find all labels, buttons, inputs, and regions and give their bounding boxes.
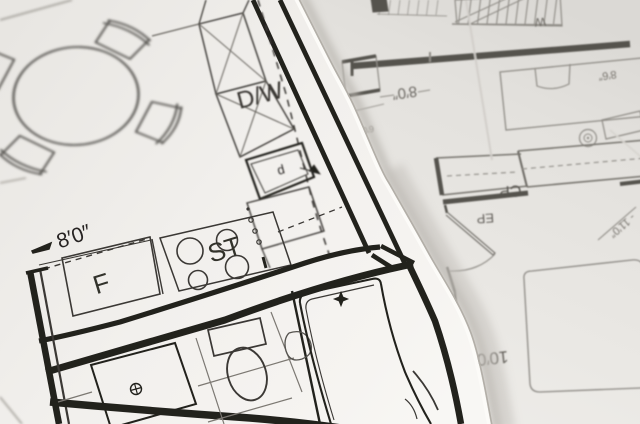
svg-text:W: W <box>533 15 546 30</box>
svg-text:8′0″: 8′0″ <box>390 82 418 102</box>
svg-text:EP: EP <box>476 210 494 226</box>
svg-text:8′6″: 8′6″ <box>597 68 617 82</box>
